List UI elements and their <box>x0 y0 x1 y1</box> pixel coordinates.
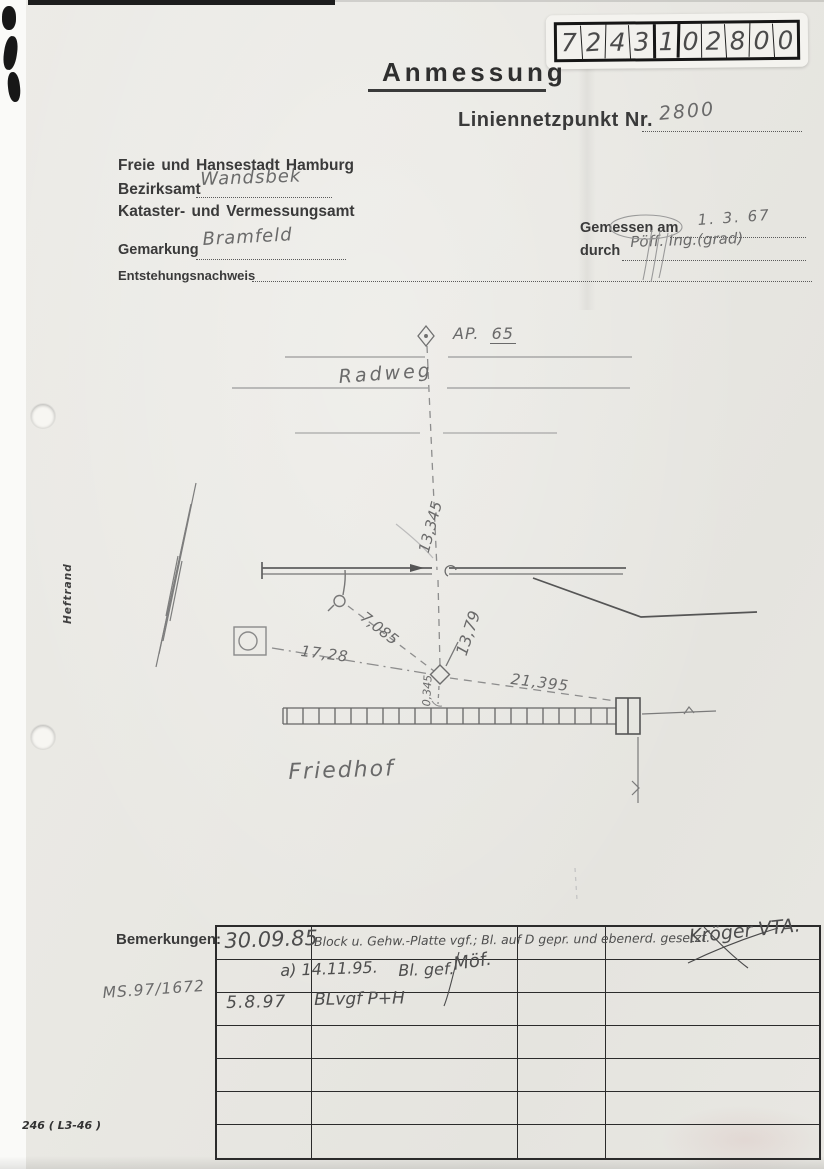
scan-artifact-blob <box>2 6 16 30</box>
measurement-13345: 13,345 <box>415 499 446 554</box>
sketch-label-ap: AP. 65 <box>453 324 516 343</box>
sketch-label-radweg: Radweg <box>338 359 434 388</box>
gemarkung-label: Gemarkung <box>118 242 199 258</box>
entstehungsnachweis-label: Entstehungsnachweis <box>118 268 255 283</box>
remarks-margin-note: MS.97/1672 <box>102 977 206 1002</box>
digit-cell: 8 <box>724 23 750 58</box>
scanned-form-page: 7 2 4 3 1 0 2 8 0 0 Anmessung Liniennetz… <box>0 0 824 1169</box>
gemarkung-handwritten: Bramfeld <box>202 224 293 250</box>
measurement-21395: 21,395 <box>510 670 570 695</box>
digit-cell: 1 <box>653 24 677 58</box>
measurement-dashed-lines <box>272 346 616 900</box>
measurement-1379: 13,79 <box>452 608 484 657</box>
table-cell <box>606 1125 819 1158</box>
gemarkung-dotted-line <box>196 258 346 260</box>
street-direction-arrow <box>410 564 424 572</box>
table-cell <box>312 1026 518 1059</box>
lamp-post-symbol <box>328 570 345 611</box>
agency-office-line: Kataster- und Vermessungsamt <box>118 203 355 221</box>
table-cell <box>518 1092 606 1125</box>
sketch-street-lines <box>262 562 757 617</box>
table-cell <box>606 1026 819 1059</box>
remarks-label: Bemerkungen: <box>116 931 221 948</box>
digit-cell: 2 <box>580 24 606 59</box>
digit-cell: 0 <box>677 24 702 59</box>
table-cell <box>312 1125 518 1158</box>
digit-cell: 2 <box>701 23 725 57</box>
table-cell <box>217 1092 312 1125</box>
digit-cell: 0 <box>749 23 774 58</box>
remark-row2-text: Bl. gef. <box>398 959 455 980</box>
measured-by-dotted-line <box>622 259 806 261</box>
margin-hatch-strokes <box>156 483 196 667</box>
table-cell <box>217 1059 312 1092</box>
form-code: 246 ( L3-46 ) <box>22 1119 101 1132</box>
point-number-grid: 7 2 4 3 1 0 2 8 0 0 <box>554 20 800 63</box>
table-cell <box>518 993 606 1026</box>
table-cell <box>606 993 819 1026</box>
table-cell <box>217 1125 312 1158</box>
form-title: Anmessung <box>382 57 567 88</box>
digit-cell: 7 <box>557 25 581 59</box>
scan-top-edge-line <box>28 0 335 5</box>
digit-cell: 0 <box>772 22 798 57</box>
title-underline <box>368 89 546 92</box>
table-cell <box>518 1026 606 1059</box>
point-number-handwritten: 2800 <box>658 98 716 125</box>
digit-cell: 4 <box>605 24 630 59</box>
ap-number-underlined: 65 <box>490 324 516 344</box>
measurement-0345: 0,345 <box>420 675 435 707</box>
measurement-1728: 17,28 <box>300 642 350 666</box>
boundary-continuation-lines <box>632 707 716 803</box>
table-cell <box>217 1026 312 1059</box>
heftrand-margin-text: Heftrand <box>62 563 74 624</box>
table-cell <box>606 1059 819 1092</box>
measured-by-label: durch <box>580 243 620 259</box>
table-cell <box>518 960 606 993</box>
remark-row3-text: BLvgf P+H <box>314 988 405 1010</box>
sketch-label-friedhof: Friedhof <box>288 756 395 785</box>
point-number-label: 7 2 4 3 1 0 2 8 0 0 <box>546 13 809 70</box>
ap-point-symbol <box>418 326 434 346</box>
entstehungsnachweis-dotted-line <box>252 280 812 282</box>
table-cell <box>518 1059 606 1092</box>
punch-hole-top <box>31 404 55 428</box>
remark-row3-date: 5.8.97 <box>226 992 286 1013</box>
measured-on-handwritten: 1. 3. 67 <box>697 206 771 229</box>
table-cell <box>312 1059 518 1092</box>
manhole-symbol <box>234 627 266 655</box>
scan-top-edge-shadow <box>335 0 824 2</box>
table-cell <box>518 1125 606 1158</box>
fence-strip <box>283 708 616 724</box>
measured-by-handwritten: Pöff. Ing.(grad) <box>630 229 743 251</box>
remark-row1-date: 30.09.85 <box>224 926 318 953</box>
digit-cell: 3 <box>628 24 654 59</box>
scan-left-margin <box>0 0 26 1169</box>
district-dotted-line <box>196 196 332 198</box>
agency-district-label: Bezirksamt <box>118 181 201 199</box>
district-handwritten: Wandsbek <box>200 165 302 190</box>
table-cell <box>312 1092 518 1125</box>
point-number-dotted-line <box>642 130 802 132</box>
ap-prefix: AP. <box>453 324 479 343</box>
point-number-caption: Liniennetzpunkt Nr. <box>458 109 653 132</box>
gate-pillar-symbol <box>616 698 640 734</box>
paper-crease <box>578 30 596 310</box>
table-cell <box>606 1092 819 1125</box>
punch-hole-bottom <box>31 725 55 749</box>
table-cell <box>606 960 819 993</box>
remark-row2-date: a) 14.11.95. <box>280 958 378 980</box>
measurement-7085: 7,085 <box>357 608 402 649</box>
